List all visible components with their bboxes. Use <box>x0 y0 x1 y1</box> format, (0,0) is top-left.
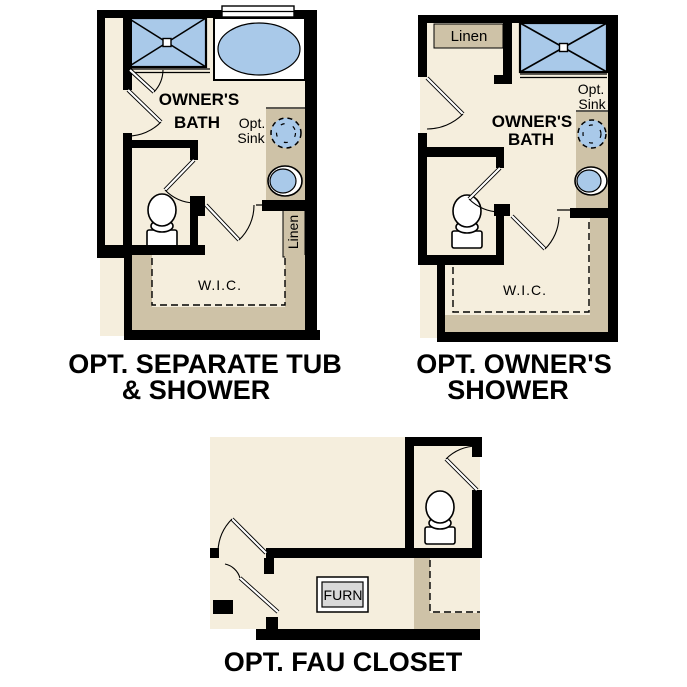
caption: OPT. FAU CLOSET <box>224 647 463 677</box>
optional-sink <box>578 120 606 148</box>
wic-shelf-right <box>285 255 305 307</box>
sink <box>268 166 302 196</box>
shower <box>520 23 607 78</box>
opt-sink-label-line2: Sink <box>578 96 606 112</box>
soaking-tub <box>214 18 305 80</box>
wic-label: W.I.C. <box>503 282 547 298</box>
furnace-label: FURN <box>324 587 363 603</box>
wic-shelf-bottom <box>445 315 608 332</box>
opt-sink-label-line2: Sink <box>237 130 265 146</box>
linen-label: Linen <box>285 215 301 249</box>
opt-sink-label-line1: Opt. <box>239 115 265 131</box>
room-label-line2: BATH <box>508 130 554 149</box>
room-label-line1: OWNER'S <box>159 90 240 109</box>
room-label-line1: OWNER'S <box>492 112 573 131</box>
plan-separate-tub-shower: OWNER'S BATH Opt. Sink W.I.C. Linen OPT.… <box>68 6 342 405</box>
wic-shelf-bottom <box>414 613 480 629</box>
wic-shelf-bottom <box>132 307 305 330</box>
room-label-line2: BATH <box>174 113 220 132</box>
floorplan-sheet: OWNER'S BATH Opt. Sink W.I.C. Linen OPT.… <box>0 0 687 687</box>
shower <box>128 18 210 73</box>
plan-owners-shower: Linen OWNER'S BATH Opt. Sink W.I.C. OPT.… <box>416 15 618 405</box>
window <box>222 6 294 17</box>
wic-shelf-left <box>132 255 152 307</box>
shower-drain <box>163 39 171 47</box>
shower-drain <box>560 44 568 52</box>
wic-shelf-right <box>590 218 608 315</box>
wic-label: W.I.C. <box>198 277 242 293</box>
caption-line2: & SHOWER <box>122 375 271 405</box>
sink <box>575 167 607 195</box>
opt-sink-label-line1: Opt. <box>578 81 604 97</box>
floorplan-canvas: OWNER'S BATH Opt. Sink W.I.C. Linen OPT.… <box>0 0 687 687</box>
toilet <box>452 195 482 248</box>
linen-label: Linen <box>451 28 488 45</box>
furnace: FURN <box>317 577 368 612</box>
caption-line2: SHOWER <box>447 375 569 405</box>
toilet <box>147 194 177 247</box>
plan-fau-closet: FURN OPT. FAU CLOSET <box>210 437 482 677</box>
optional-sink <box>271 118 301 148</box>
toilet <box>425 491 455 544</box>
